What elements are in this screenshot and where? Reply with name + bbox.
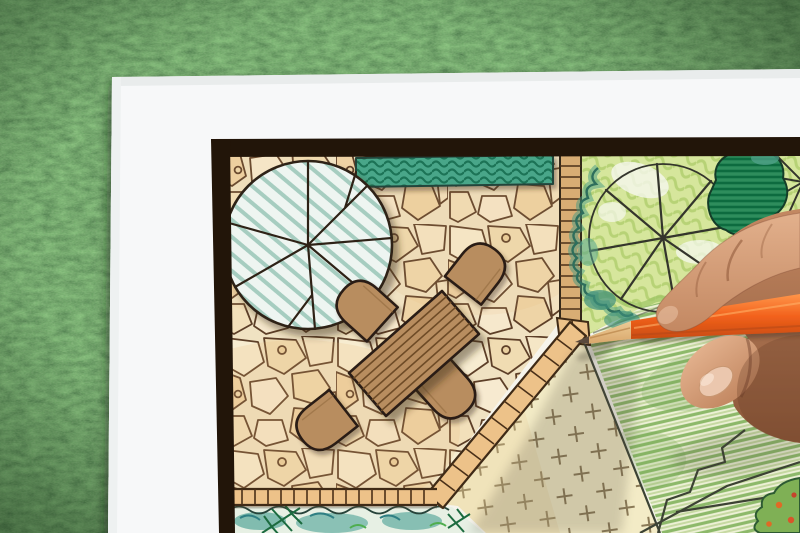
hedge-strip [356, 155, 553, 187]
photo-garden-plan-sketch [0, 0, 800, 533]
bottom-planting-bed [229, 504, 484, 533]
